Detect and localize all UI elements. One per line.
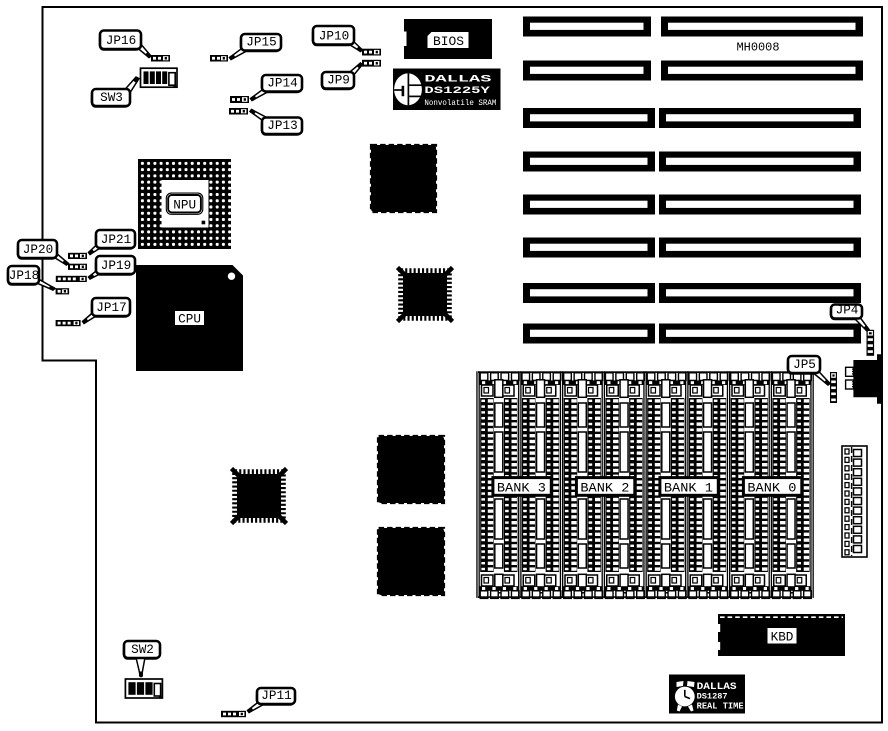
svg-text:JP4: JP4 <box>836 304 859 318</box>
svg-text:DALLAS: DALLAS <box>424 73 491 85</box>
svg-text:REAL TIME: REAL TIME <box>697 702 744 712</box>
svg-text:JP15: JP15 <box>246 36 276 50</box>
svg-text:BIOS: BIOS <box>433 35 464 49</box>
svg-text:KBD: KBD <box>771 630 794 644</box>
svg-text:JP9: JP9 <box>327 74 350 88</box>
svg-text:JP21: JP21 <box>101 233 131 247</box>
svg-text:SW2: SW2 <box>131 643 154 657</box>
svg-text:JP19: JP19 <box>101 259 131 273</box>
svg-text:DS1225Y: DS1225Y <box>424 85 491 97</box>
svg-text:BANK 0: BANK 0 <box>747 480 796 495</box>
svg-text:JP16: JP16 <box>106 34 136 48</box>
svg-text:JP5: JP5 <box>793 358 816 372</box>
svg-text:JP18: JP18 <box>9 269 39 283</box>
svg-text:CPU: CPU <box>178 312 201 326</box>
svg-text:BANK 2: BANK 2 <box>580 480 629 495</box>
svg-text:DS1287: DS1287 <box>697 693 728 702</box>
svg-text:JP10: JP10 <box>319 30 349 44</box>
svg-text:MH0008: MH0008 <box>737 42 780 55</box>
svg-text:BANK 1: BANK 1 <box>664 480 713 495</box>
svg-text:DALLAS: DALLAS <box>697 681 737 692</box>
svg-text:JP17: JP17 <box>96 301 126 315</box>
svg-text:JP11: JP11 <box>261 689 291 703</box>
svg-text:NPU: NPU <box>173 198 196 212</box>
svg-text:Nonvolatile SRAM: Nonvolatile SRAM <box>424 98 496 108</box>
svg-text:JP14: JP14 <box>267 77 297 91</box>
svg-text:SW3: SW3 <box>100 91 123 105</box>
svg-text:JP20: JP20 <box>23 243 53 257</box>
svg-text:JP13: JP13 <box>267 119 297 133</box>
svg-text:BANK 3: BANK 3 <box>497 480 546 495</box>
